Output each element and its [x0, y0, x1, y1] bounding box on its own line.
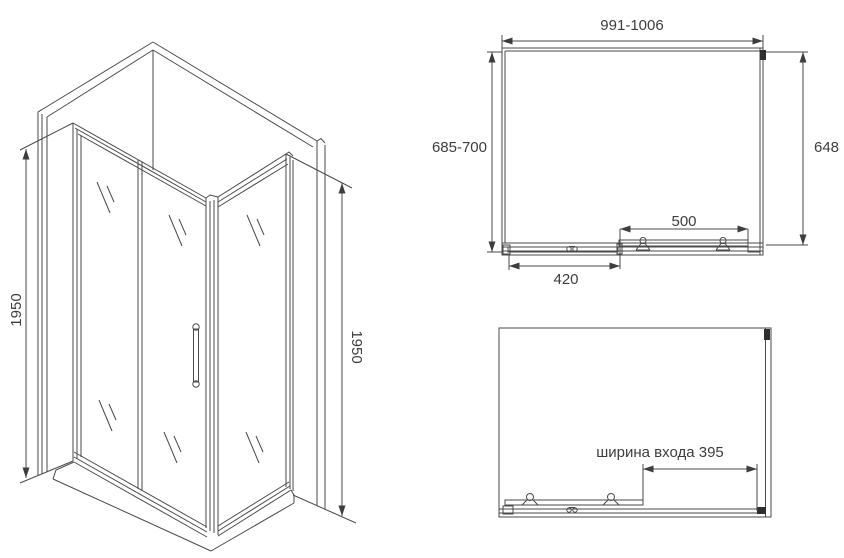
dim-height-left: 1950: [8, 123, 73, 483]
roller-icon: [636, 238, 650, 251]
dim-fixed-width: 420: [509, 254, 620, 288]
dim-fixed-width-label: 420: [553, 271, 578, 288]
dim-side-depth-label: 648: [814, 139, 839, 156]
dim-entrance-width-label: ширина входа 395: [596, 444, 724, 461]
dim-door-width-label: 500: [671, 213, 696, 230]
roller-icon: [522, 494, 538, 506]
dim-height-right: 1950: [286, 154, 365, 523]
wall-right: [153, 42, 325, 509]
glass-reflection-marks: [97, 182, 264, 463]
door-handle: [193, 324, 199, 387]
glass-divider: [138, 160, 142, 491]
dim-width-range: 991-1006: [502, 17, 763, 48]
extension-line: [286, 154, 352, 188]
isometric-view: 1950 1950: [8, 42, 365, 551]
roller-icon: [603, 494, 619, 506]
door-knob-icon: [567, 508, 577, 513]
shower-enclosure-diagram: 1950 1950: [0, 0, 844, 558]
wall-profile-mark: [757, 507, 766, 514]
dim-depth-range-label: 685-700: [432, 139, 487, 156]
shower-frame: [73, 123, 293, 537]
dim-height-left-label: 1950: [8, 293, 25, 326]
diagram-canvas: 1950 1950: [0, 0, 844, 558]
fixed-panel-plan: [503, 244, 622, 254]
wall-profile-mark: [764, 329, 770, 340]
dim-side-depth: 648: [766, 52, 839, 245]
dim-entrance-width: ширина входа 395: [596, 444, 757, 511]
dim-width-range-label: 991-1006: [600, 17, 663, 34]
roller-icon: [716, 238, 730, 251]
dim-height-right-label: 1950: [348, 330, 365, 363]
dim-door-width: 500: [620, 213, 748, 269]
wall-profile-mark: [760, 50, 766, 60]
plan-view-open: ширина входа 395: [499, 328, 771, 517]
plan-view-closed: 991-1006 685-700 648 500 420: [432, 17, 839, 288]
wall-left: [38, 42, 153, 475]
dim-depth-range: 685-700: [432, 52, 502, 252]
